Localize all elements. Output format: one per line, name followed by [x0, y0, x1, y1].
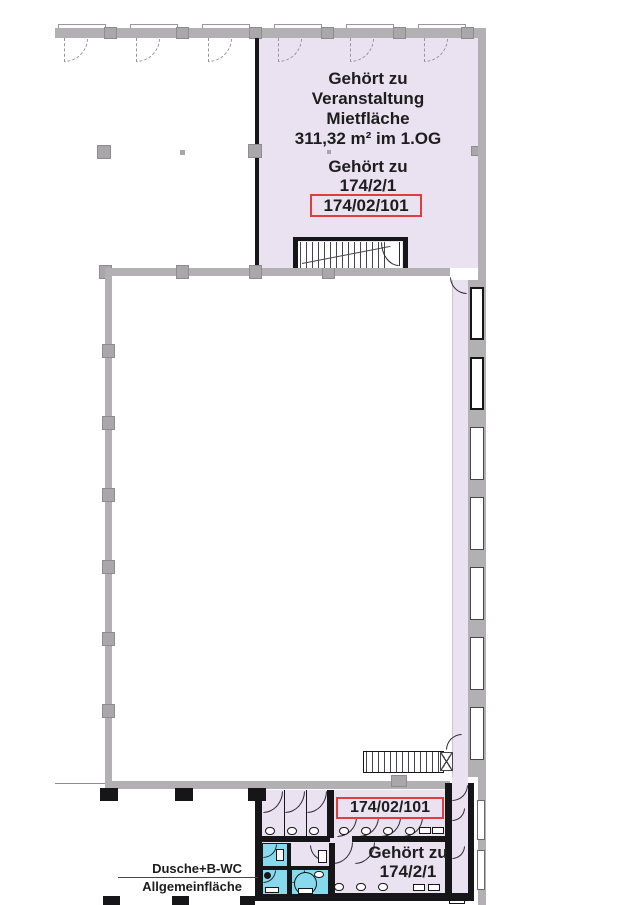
column — [102, 632, 115, 646]
unit-code-badge: 174/02/101 — [336, 797, 444, 819]
toilet-fixture — [356, 883, 366, 891]
column — [102, 488, 115, 502]
sink-fixture — [428, 884, 440, 891]
sink-fixture — [276, 849, 284, 861]
toilet-fixture — [334, 883, 344, 891]
parcel-label: Gehört zu 174/2/1 — [352, 843, 464, 881]
dedication-line: Veranstaltung — [252, 89, 484, 109]
door-swing-symbol — [446, 734, 462, 750]
toilet-fixture — [339, 827, 349, 835]
door-leaf-symbol — [208, 38, 209, 62]
column — [103, 896, 120, 905]
toilet-fixture — [314, 871, 324, 878]
parcel-line: 174/2/1 — [252, 176, 484, 195]
door-swing-symbol — [136, 38, 160, 62]
wall-segment — [293, 237, 298, 268]
toilet-fixture — [378, 883, 388, 891]
survey-point — [180, 150, 185, 155]
window — [470, 287, 484, 340]
window — [477, 800, 485, 840]
column — [102, 704, 115, 718]
survey-point — [327, 150, 331, 154]
annotation-label: Dusche+B-WC — [100, 861, 242, 876]
sink-fixture — [419, 827, 431, 834]
floor-drain — [264, 872, 271, 879]
column — [100, 788, 118, 801]
door-leaf-symbol — [278, 38, 279, 62]
partition-wall — [329, 843, 335, 896]
column — [176, 27, 189, 39]
door-swing-symbol — [64, 38, 88, 62]
shaft-symbol — [440, 752, 453, 771]
door-swing-symbol — [208, 38, 232, 62]
floor-plan: Gehört zu Veranstaltung Mietfläche 311,3… — [0, 0, 640, 905]
partition-wall — [287, 843, 291, 866]
toilet-fixture — [265, 827, 275, 835]
column — [249, 265, 262, 279]
column — [321, 27, 334, 39]
door-leaf-symbol — [136, 38, 137, 62]
window — [470, 497, 484, 550]
wall-segment — [403, 237, 408, 268]
column — [97, 145, 111, 159]
window — [470, 567, 484, 620]
wall-segment — [262, 836, 330, 842]
column — [102, 560, 115, 574]
column — [102, 344, 115, 358]
window — [470, 707, 484, 760]
sink-fixture — [298, 888, 313, 894]
stair-treads — [366, 752, 440, 772]
dedication-line: Gehört zu — [252, 69, 484, 89]
unit-code-badge: 174/02/101 — [310, 194, 422, 217]
wall-segment — [293, 237, 407, 241]
window — [470, 357, 484, 410]
partition-wall — [284, 790, 285, 836]
column — [104, 27, 117, 39]
door-leaf-symbol — [350, 38, 351, 62]
wall-segment — [255, 788, 262, 901]
parcel-line: 174/2/1 — [352, 862, 464, 881]
corridor — [452, 280, 468, 893]
partition-wall — [327, 790, 334, 838]
parcel-line: Gehört zu — [252, 157, 484, 176]
column — [240, 896, 255, 905]
column — [461, 27, 474, 39]
toilet-fixture — [405, 827, 415, 835]
wall-segment — [452, 280, 453, 777]
column — [175, 788, 193, 801]
partition-wall — [287, 869, 291, 895]
column — [172, 896, 189, 905]
toilet-fixture — [383, 827, 393, 835]
parcel-label: Gehört zu 174/2/1 — [252, 157, 484, 195]
window — [477, 850, 485, 890]
sink-fixture — [413, 884, 425, 891]
wall-segment — [468, 783, 474, 893]
column — [102, 416, 115, 430]
door-leaf-symbol — [399, 242, 400, 266]
area-size-label: 311,32 m² im 1.OG — [252, 129, 484, 149]
door-leaf-symbol — [64, 38, 65, 62]
column — [393, 27, 406, 39]
column — [391, 775, 407, 787]
dedication-line: Mietfläche — [252, 109, 484, 129]
annotation-label: Allgemeinfläche — [100, 879, 242, 894]
sink-fixture — [432, 827, 444, 834]
partition-wall — [306, 790, 307, 836]
event-area-label: Gehört zu Veranstaltung Mietfläche 311,3… — [252, 69, 484, 149]
toilet-fixture — [361, 827, 371, 835]
column — [176, 265, 189, 279]
toilet-fixture — [309, 827, 319, 835]
window — [470, 637, 484, 690]
parcel-line: Gehört zu — [352, 843, 464, 862]
wall-segment — [105, 268, 450, 276]
toilet-fixture — [287, 827, 297, 835]
wall-segment — [55, 783, 105, 784]
sink-fixture — [265, 887, 279, 893]
annotation-leader-line — [118, 877, 258, 878]
wall-segment — [55, 28, 486, 38]
sink-fixture — [318, 850, 327, 863]
door-leaf-symbol — [424, 38, 425, 62]
window — [470, 427, 484, 480]
